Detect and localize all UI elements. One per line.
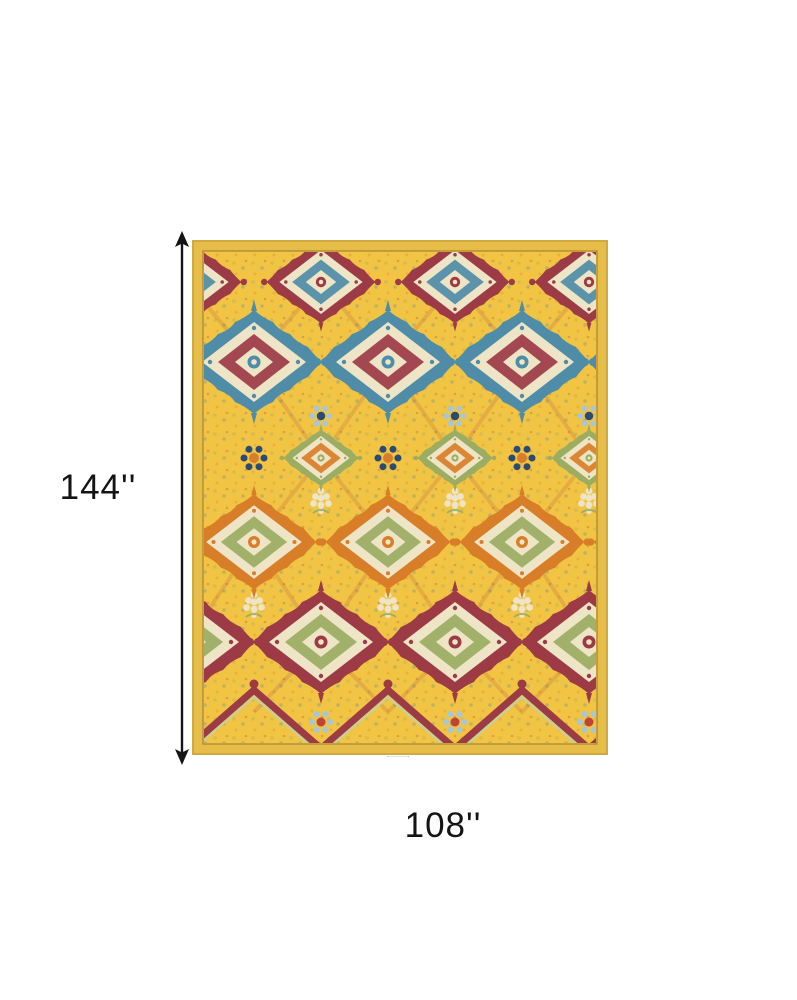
height-dimension-label: 144'' [53,468,143,508]
product-dimension-diagram: 144'' 108'' [0,0,797,1000]
rug-illustration [192,240,608,755]
height-dimension-arrow [168,231,196,765]
rug-product-image [192,240,608,755]
width-dimension-label: 108'' [398,806,488,846]
width-dimension-arrow [184,756,612,784]
